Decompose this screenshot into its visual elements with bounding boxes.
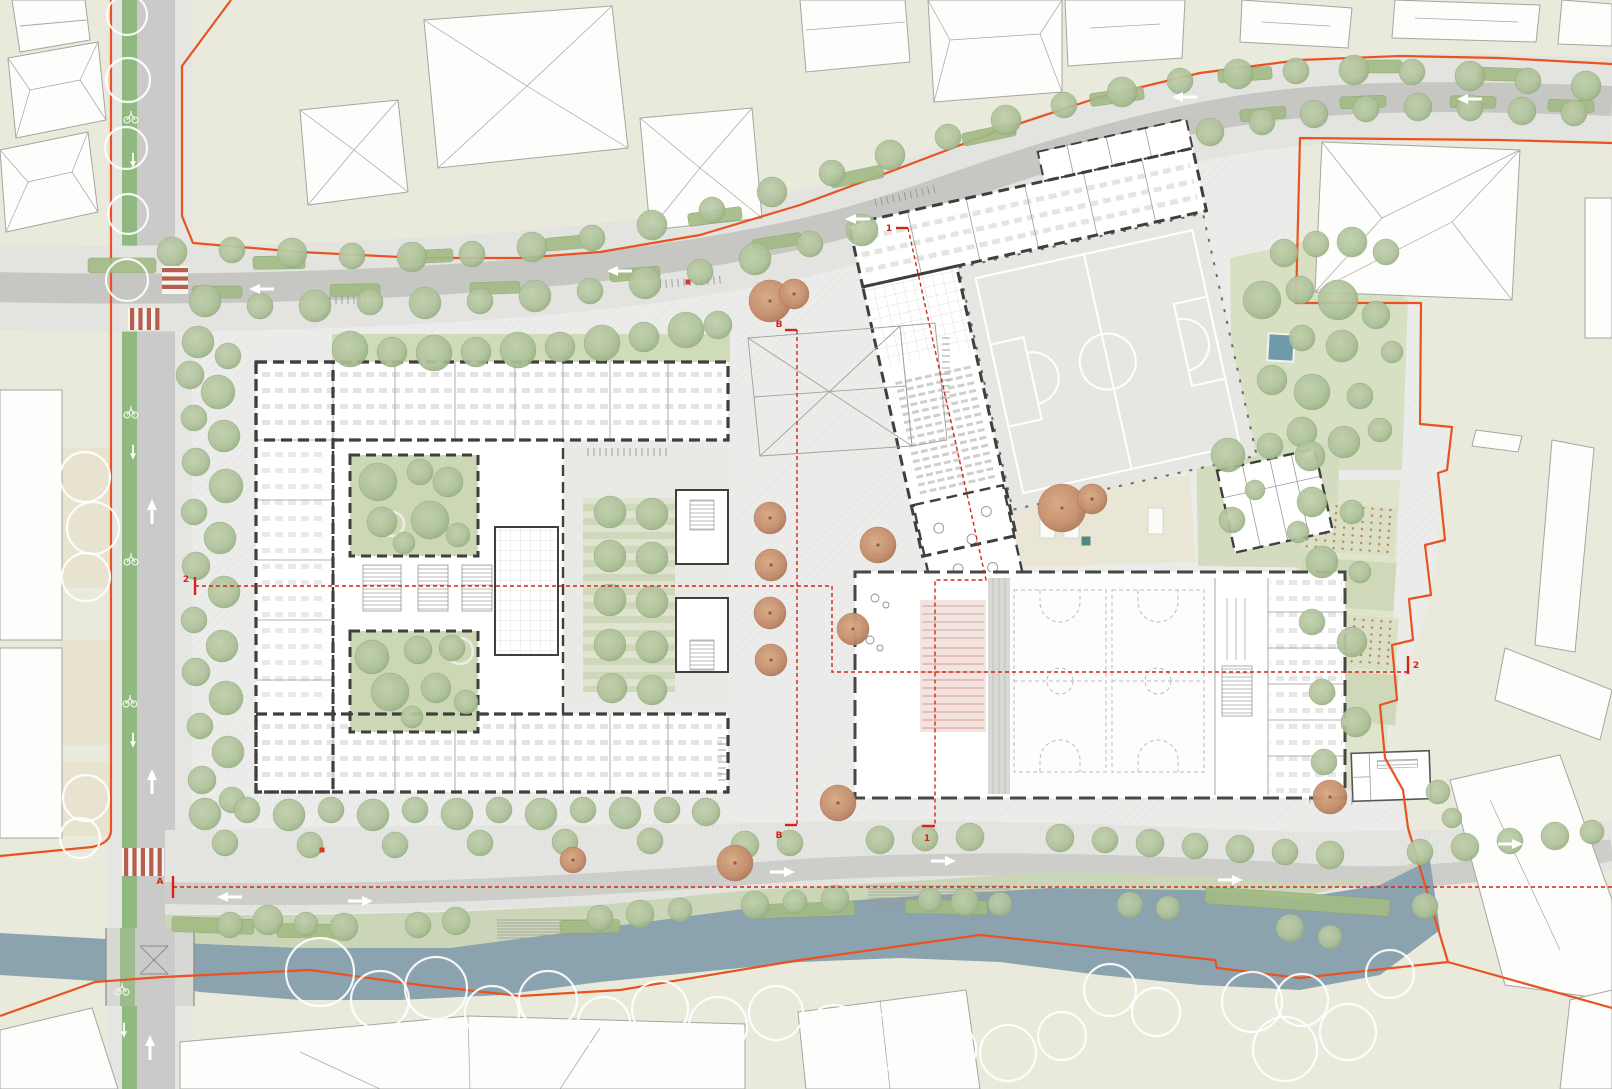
tree-trunk: [1090, 497, 1093, 500]
tree-green: [1561, 100, 1587, 126]
tree-trunk: [792, 292, 795, 295]
tree-green: [1318, 280, 1358, 320]
tree-green: [1373, 239, 1399, 265]
tree-green: [1182, 833, 1208, 859]
tree-green: [1339, 55, 1369, 85]
tree-green: [1245, 480, 1265, 500]
tree-green: [416, 335, 452, 371]
tree-green: [355, 640, 389, 674]
section-label-B: B: [776, 320, 783, 330]
tree-green: [273, 799, 305, 831]
tree-green: [411, 501, 449, 539]
tree-green: [204, 522, 236, 554]
tree-green: [182, 658, 210, 686]
tree-green: [918, 888, 942, 912]
crosswalk-stripe: [138, 308, 142, 330]
tree-green: [584, 325, 620, 361]
tree-green: [517, 232, 547, 262]
tree-green: [1311, 749, 1337, 775]
tree-green: [1497, 828, 1523, 854]
tree-green: [1571, 71, 1601, 101]
tree-green: [409, 287, 441, 319]
tree-green: [821, 885, 849, 913]
tree-green: [1136, 829, 1164, 857]
tree-green: [1303, 231, 1329, 257]
tree-green: [1316, 841, 1344, 869]
tree-green: [519, 280, 551, 312]
tree-trunk: [769, 563, 772, 566]
section-label-1: 1: [924, 834, 930, 844]
tree-green: [1107, 77, 1137, 107]
crosswalk-stripe: [130, 308, 134, 330]
tree-green: [1286, 276, 1314, 304]
tree-green: [157, 237, 187, 267]
tree-green: [636, 631, 668, 663]
west-court-1: [60, 448, 110, 588]
tree-trunk: [768, 611, 771, 614]
tree-green: [1092, 827, 1118, 853]
tree-green: [525, 798, 557, 830]
tree-green: [654, 797, 680, 823]
tree-green: [467, 288, 493, 314]
tree-green: [1541, 822, 1569, 850]
tree-green: [637, 210, 667, 240]
crosswalk-stripe: [132, 848, 136, 876]
tree-green: [234, 797, 260, 823]
tree-green: [454, 690, 478, 714]
tree-green: [1407, 839, 1433, 865]
tree-green: [318, 797, 344, 823]
tree-green: [1297, 487, 1327, 517]
tree-green: [217, 912, 243, 938]
tree-green: [626, 900, 654, 928]
tree-green: [1349, 561, 1371, 583]
tree-green: [377, 337, 407, 367]
site-plan-canvas: ABB1122: [0, 0, 1612, 1089]
tree-green: [1347, 383, 1373, 409]
tree-green: [439, 635, 465, 661]
tree-green: [636, 586, 668, 618]
tree-green: [1404, 93, 1432, 121]
tree-green: [1257, 365, 1287, 395]
site-plan-page: ABB1122: [0, 0, 1612, 1089]
crosswalk-stripe: [162, 285, 188, 289]
tree-green: [339, 243, 365, 269]
tree-green: [1219, 507, 1245, 533]
tree-trunk: [876, 543, 879, 546]
crosswalk-stripe: [149, 848, 153, 876]
tree-green: [441, 798, 473, 830]
tree-green: [587, 905, 613, 931]
tree-trunk: [769, 658, 772, 661]
tree-green: [188, 766, 216, 794]
tree-green: [594, 540, 626, 572]
tree-green: [459, 241, 485, 267]
section-label-1: 1: [886, 224, 892, 234]
tree-green: [1442, 808, 1462, 828]
tree-green: [1226, 835, 1254, 863]
tree-green: [209, 681, 243, 715]
sports-hall: [855, 572, 1345, 798]
tree-green: [1318, 925, 1342, 949]
tree-green: [402, 797, 428, 823]
school-hall: [495, 527, 558, 655]
tree-green: [421, 673, 451, 703]
tree-green: [1306, 546, 1338, 578]
tree-green: [215, 343, 241, 369]
tree-green: [1283, 58, 1309, 84]
tree-green: [1412, 893, 1438, 919]
tree-green: [1455, 61, 1485, 91]
tree-green: [594, 496, 626, 528]
tree-green: [577, 278, 603, 304]
tree-green: [181, 499, 207, 525]
tree-green: [1362, 301, 1390, 329]
tree-green: [212, 736, 244, 768]
tree-green: [1451, 833, 1479, 861]
tree-green: [294, 912, 318, 936]
tree-green: [741, 891, 769, 919]
tree-green: [1156, 896, 1180, 920]
tree-green: [299, 290, 331, 322]
tree-green: [1295, 441, 1325, 471]
tree-green: [988, 892, 1012, 916]
tree-green: [181, 405, 207, 431]
tree-green: [1508, 97, 1536, 125]
tree-green: [668, 898, 692, 922]
tree-green: [704, 311, 732, 339]
tree-green: [405, 912, 431, 938]
marker-square: [686, 280, 691, 285]
tree-green: [956, 823, 984, 851]
crosswalk-stripe: [162, 268, 188, 272]
tree-green: [219, 237, 245, 263]
tree-green: [1276, 914, 1304, 942]
marker-square: [1082, 537, 1091, 546]
section-label-B: B: [776, 831, 783, 841]
tree-green: [201, 375, 235, 409]
tree-green: [253, 905, 283, 935]
tree-trunk: [1328, 795, 1331, 798]
tree-green: [1051, 92, 1077, 118]
tree-green: [461, 337, 491, 367]
tree-green: [1515, 68, 1541, 94]
tree-green: [330, 913, 358, 941]
section-label-2: 2: [1413, 661, 1419, 671]
play-mat: [1148, 508, 1163, 534]
tree-green: [371, 673, 409, 711]
tree-green: [176, 361, 204, 389]
west-court-2: [60, 640, 110, 745]
tree-green: [467, 830, 493, 856]
tree-green: [486, 797, 512, 823]
tree-green: [1368, 418, 1392, 442]
tree-green: [1340, 500, 1364, 524]
tree-green: [357, 289, 383, 315]
crosswalk-stripe: [147, 308, 151, 330]
tree-green: [692, 798, 720, 826]
tree-green: [637, 828, 663, 854]
tree-green: [187, 713, 213, 739]
tree-green: [875, 140, 905, 170]
tree-green: [247, 293, 273, 319]
crosswalk-stripe: [141, 848, 145, 876]
tree-green: [182, 326, 214, 358]
tree-green: [1167, 68, 1193, 94]
tree-green: [357, 799, 389, 831]
tree-green: [1337, 227, 1367, 257]
tree-green: [991, 105, 1021, 135]
tree-trunk: [836, 801, 839, 804]
tree-green: [367, 507, 397, 537]
tree-green: [359, 463, 397, 501]
tree-green: [545, 332, 575, 362]
tree-green: [636, 542, 668, 574]
tree-green: [407, 459, 433, 485]
tree-trunk: [1060, 506, 1063, 509]
tree-green: [637, 675, 667, 705]
tree-green: [1328, 426, 1360, 458]
crosswalk-stripe: [155, 308, 159, 330]
tree-green: [1580, 820, 1604, 844]
se-pavilion: [1351, 751, 1431, 802]
tree-green: [189, 798, 221, 830]
tree-green: [636, 498, 668, 530]
tree-green: [433, 467, 463, 497]
tree-green: [629, 267, 661, 299]
tree-green: [739, 243, 771, 275]
tree-green: [189, 285, 221, 317]
tree-green: [797, 231, 823, 257]
tree-green: [668, 312, 704, 348]
tree-green: [609, 797, 641, 829]
tree-green: [935, 124, 961, 150]
crosswalk-stripe: [162, 276, 188, 280]
section-label-A: A: [157, 877, 164, 887]
tree-green: [594, 584, 626, 616]
tree-green: [277, 238, 307, 268]
tree-green: [1249, 109, 1275, 135]
tree-green: [757, 177, 787, 207]
tree-green: [206, 630, 238, 662]
tree-green: [208, 576, 240, 608]
school-building: [256, 362, 728, 792]
tree-green: [442, 907, 470, 935]
tree-green: [570, 797, 596, 823]
tree-green: [1223, 59, 1253, 89]
tree-green: [1309, 679, 1335, 705]
tree-green: [212, 830, 238, 856]
tree-green: [382, 832, 408, 858]
tree-green: [404, 636, 432, 664]
tree-trunk: [768, 516, 771, 519]
tree-green: [1399, 59, 1425, 85]
tree-green: [783, 890, 807, 914]
tree-green: [687, 259, 713, 285]
tree-green: [397, 242, 427, 272]
tree-green: [819, 160, 845, 186]
tree-green: [1381, 341, 1403, 363]
tree-green: [1257, 433, 1283, 459]
tree-green: [1289, 325, 1315, 351]
section-label-2: 2: [183, 575, 189, 585]
tree-green: [1300, 100, 1328, 128]
tree-trunk: [851, 627, 854, 630]
crosswalk-stripe: [124, 848, 128, 876]
tree-green: [401, 706, 423, 728]
tree-green: [1196, 118, 1224, 146]
tree-green: [594, 629, 626, 661]
tree-green: [209, 469, 243, 503]
tree-green: [1353, 96, 1379, 122]
tree-green: [332, 331, 368, 367]
tree-trunk: [768, 299, 771, 302]
crosswalk-stripe: [158, 848, 162, 876]
tree-green: [1270, 239, 1298, 267]
tree-green: [951, 888, 979, 916]
tree-green: [446, 523, 470, 547]
tree-green: [866, 826, 894, 854]
tree-green: [1046, 824, 1074, 852]
tree-green: [597, 673, 627, 703]
tree-green: [182, 448, 210, 476]
tree-green: [1243, 281, 1281, 319]
tree-green: [500, 332, 536, 368]
tree-green: [297, 832, 323, 858]
tree-green: [181, 607, 207, 633]
tree-green: [1294, 374, 1330, 410]
tree-green: [1299, 609, 1325, 635]
tree-green: [579, 225, 605, 251]
tree-trunk: [571, 858, 574, 861]
tree-green: [1117, 892, 1143, 918]
tree-green: [1337, 627, 1367, 657]
marker-square: [320, 848, 325, 853]
tree-green: [1426, 780, 1450, 804]
tree-green: [1287, 521, 1309, 543]
tree-green: [699, 197, 725, 223]
tree-green: [1211, 438, 1245, 472]
tree-green: [393, 532, 415, 554]
tree-green: [1341, 707, 1371, 737]
tree-green: [629, 322, 659, 352]
tree-green: [1272, 839, 1298, 865]
tree-green: [208, 420, 240, 452]
tree-trunk: [733, 861, 736, 864]
tree-green: [1326, 330, 1358, 362]
